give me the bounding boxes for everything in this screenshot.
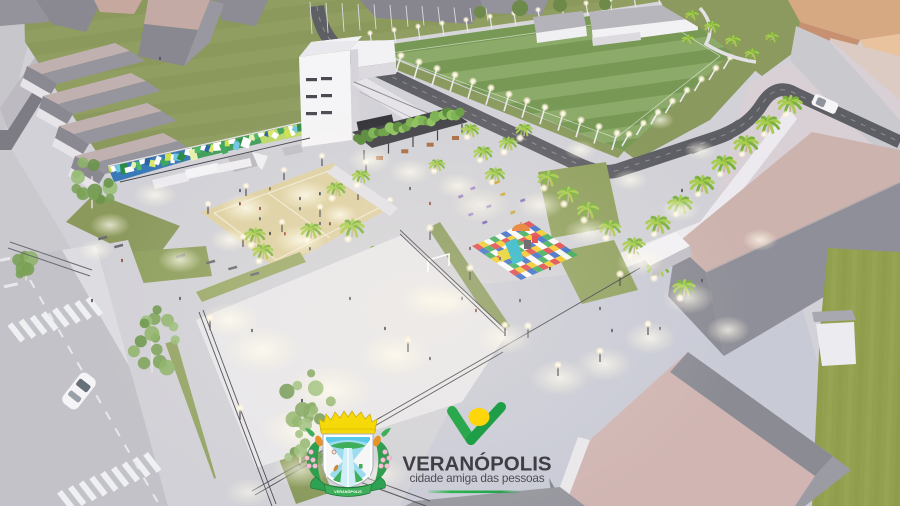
svg-text:VERANÓPOLIS: VERANÓPOLIS xyxy=(334,489,362,494)
svg-text:cidade amiga das pessoas: cidade amiga das pessoas xyxy=(410,471,545,485)
